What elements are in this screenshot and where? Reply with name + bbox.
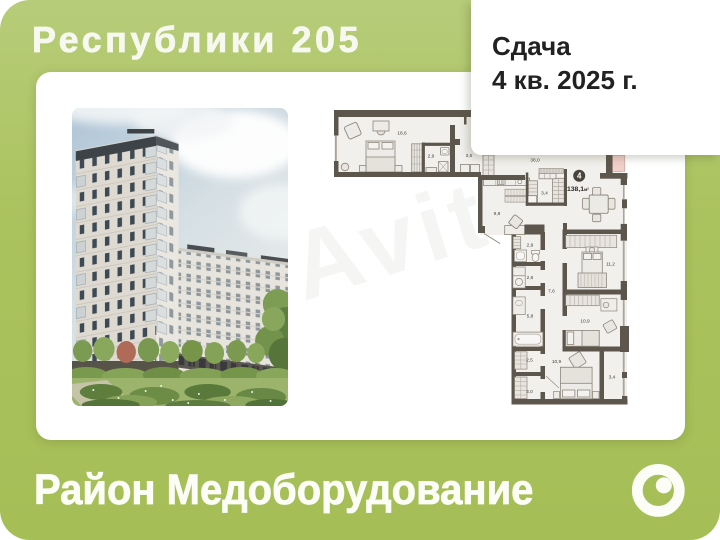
svg-text:11,2: 11,2 <box>606 262 615 268</box>
svg-text:4: 4 <box>577 172 582 181</box>
svg-text:38,0: 38,0 <box>530 157 540 163</box>
svg-text:10,9: 10,9 <box>580 318 590 324</box>
svg-text:2,5: 2,5 <box>526 357 533 363</box>
svg-text:2,6: 2,6 <box>527 275 534 281</box>
svg-text:3,5: 3,5 <box>466 153 473 159</box>
svg-text:138,1м²: 138,1м² <box>567 186 589 193</box>
svg-text:3,4: 3,4 <box>609 374 616 380</box>
svg-text:2,9: 2,9 <box>527 242 534 248</box>
svg-text:5,8: 5,8 <box>527 313 534 319</box>
svg-text:7,6: 7,6 <box>548 288 555 294</box>
svg-text:2,9: 2,9 <box>428 154 435 160</box>
svg-text:3,4: 3,4 <box>541 191 548 197</box>
svg-text:18,6: 18,6 <box>397 131 407 137</box>
svg-text:3,0: 3,0 <box>526 389 533 395</box>
svg-text:9,8: 9,8 <box>494 211 501 217</box>
svg-text:10,9: 10,9 <box>552 359 562 365</box>
